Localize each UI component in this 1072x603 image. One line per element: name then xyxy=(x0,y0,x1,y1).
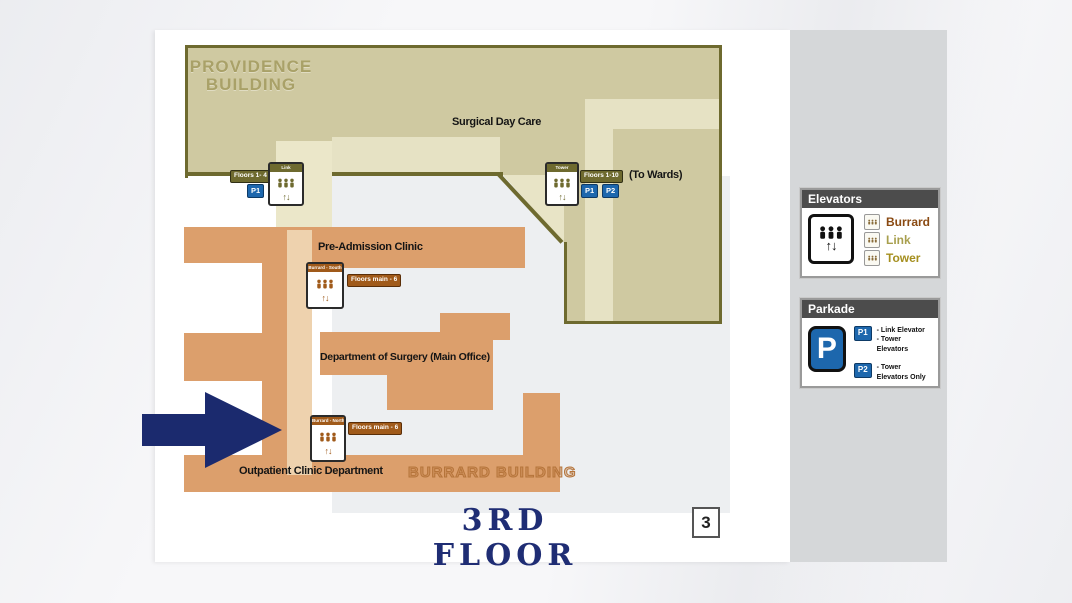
surgical-day-care-label: Surgical Day Care xyxy=(452,116,541,128)
border-wing-left xyxy=(564,242,567,324)
p1-description: - Link Elevator - Tower Elevators xyxy=(877,326,932,354)
up-down-arrows-icon: ↑↓ xyxy=(312,447,344,456)
mini-elevator-icon xyxy=(864,250,880,266)
surgery-label: Department of Surgery (Main Office) xyxy=(320,351,490,363)
legend-label-tower: Tower xyxy=(886,251,920,265)
tower-elevator-icon: Tower ↑↓ xyxy=(545,162,579,206)
border-wing-bottom xyxy=(564,321,722,324)
p2-badge: P2 xyxy=(854,363,872,378)
burrard-south-elevator-header: Burrard - South xyxy=(308,264,342,272)
parkade-entry-p2: P2 - Tower Elevators Only xyxy=(854,363,932,382)
providence-corridor-horizontal xyxy=(332,137,500,172)
elevator-people-icon xyxy=(547,175,577,193)
floors-main-6-upper-badge: Floors main - 6 xyxy=(347,274,401,287)
up-down-arrows-icon: ↑↓ xyxy=(308,294,342,303)
p2-description: - Tower Elevators Only xyxy=(877,363,932,382)
legend-row-tower: Tower xyxy=(864,250,930,266)
elevator-people-icon xyxy=(312,429,344,447)
elevators-legend-body: ↑↓ Burrard xyxy=(802,208,938,272)
parkade-entries: P1 - Link Elevator - Tower Elevators P2 … xyxy=(854,326,932,382)
legend-side-panel xyxy=(790,30,947,562)
burrard-tower-shape xyxy=(523,393,560,455)
up-down-arrows-icon: ↑↓ xyxy=(547,193,577,202)
link-p1-badge: P1 xyxy=(247,184,264,198)
elevator-sign-icon: ↑↓ xyxy=(808,214,854,264)
burrard-north-elevator-icon: Burrard - North ↑↓ xyxy=(310,415,346,462)
mini-elevator-icon xyxy=(864,214,880,230)
legend-label-link: Link xyxy=(886,233,911,247)
tower-p2-badge: P2 xyxy=(602,184,619,198)
page-number-box: 3 xyxy=(692,507,720,538)
link-elevator-header: Link xyxy=(270,164,302,172)
up-down-arrows-icon: ↑↓ xyxy=(270,193,302,202)
floors-1-4-badge: Floors 1- 4 xyxy=(230,170,271,183)
parkade-legend: Parkade P P1 - Link Elevator - Tower Ele… xyxy=(800,298,940,388)
floors-main-6-lower-badge: Floors main - 6 xyxy=(348,422,402,435)
elevator-people-icon xyxy=(308,276,342,294)
parkade-legend-body: P P1 - Link Elevator - Tower Elevators P… xyxy=(802,318,938,390)
pre-admission-label: Pre-Admission Clinic xyxy=(318,241,423,253)
border-top xyxy=(185,45,722,48)
parkade-entry-p1: P1 - Link Elevator - Tower Elevators xyxy=(854,326,932,354)
surgery-block-lower-shape xyxy=(387,375,493,410)
tower-elevator-header: Tower xyxy=(547,164,577,172)
parking-icon: P xyxy=(808,326,846,372)
floors-1-10-badge: Floors 1-10 xyxy=(580,170,623,183)
burrard-south-elevator-icon: Burrard - South ↑↓ xyxy=(306,262,344,309)
legend-row-link: Link xyxy=(864,232,930,248)
border-bottom-b xyxy=(332,172,503,176)
page: { "map": { "providence_label": "PROVIDEN… xyxy=(0,0,1072,603)
p1-badge: P1 xyxy=(854,326,872,341)
border-right xyxy=(719,45,722,324)
providence-building-label: PROVIDENCE BUILDING xyxy=(186,58,316,94)
elevators-legend-rows: Burrard Link xyxy=(864,214,930,266)
legend-row-burrard: Burrard xyxy=(864,214,930,230)
elevator-people-icon xyxy=(270,175,302,193)
elevators-legend-title: Elevators xyxy=(802,190,938,208)
floor-title: 3RD FLOOR xyxy=(380,503,630,573)
outpatient-label: Outpatient Clinic Department xyxy=(239,465,383,477)
tower-p1-badge: P1 xyxy=(581,184,598,198)
up-down-arrows-icon: ↑↓ xyxy=(826,239,837,252)
link-elevator-icon: Link ↑↓ xyxy=(268,162,304,206)
providence-corridor-notch xyxy=(613,99,719,129)
legend-label-burrard: Burrard xyxy=(886,215,930,229)
parkade-legend-title: Parkade xyxy=(802,300,938,318)
to-wards-label: (To Wards) xyxy=(629,169,682,181)
providence-corridor-vertical xyxy=(585,99,613,321)
elevators-legend: Elevators ↑↓ Burrard xyxy=(800,188,940,278)
burrard-building-label: BURRARD BUILDING xyxy=(408,464,577,481)
burrard-north-elevator-header: Burrard - North xyxy=(312,417,344,425)
mini-elevator-icon xyxy=(864,232,880,248)
